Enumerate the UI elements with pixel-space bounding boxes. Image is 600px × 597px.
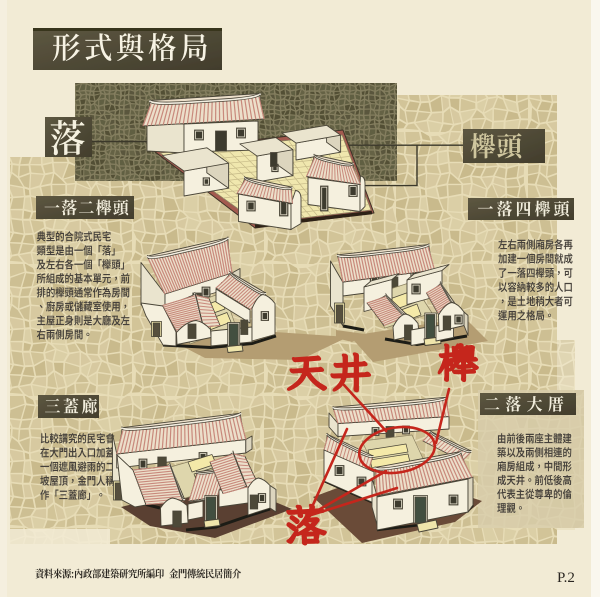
svg-text:P.2: P.2: [557, 570, 575, 586]
